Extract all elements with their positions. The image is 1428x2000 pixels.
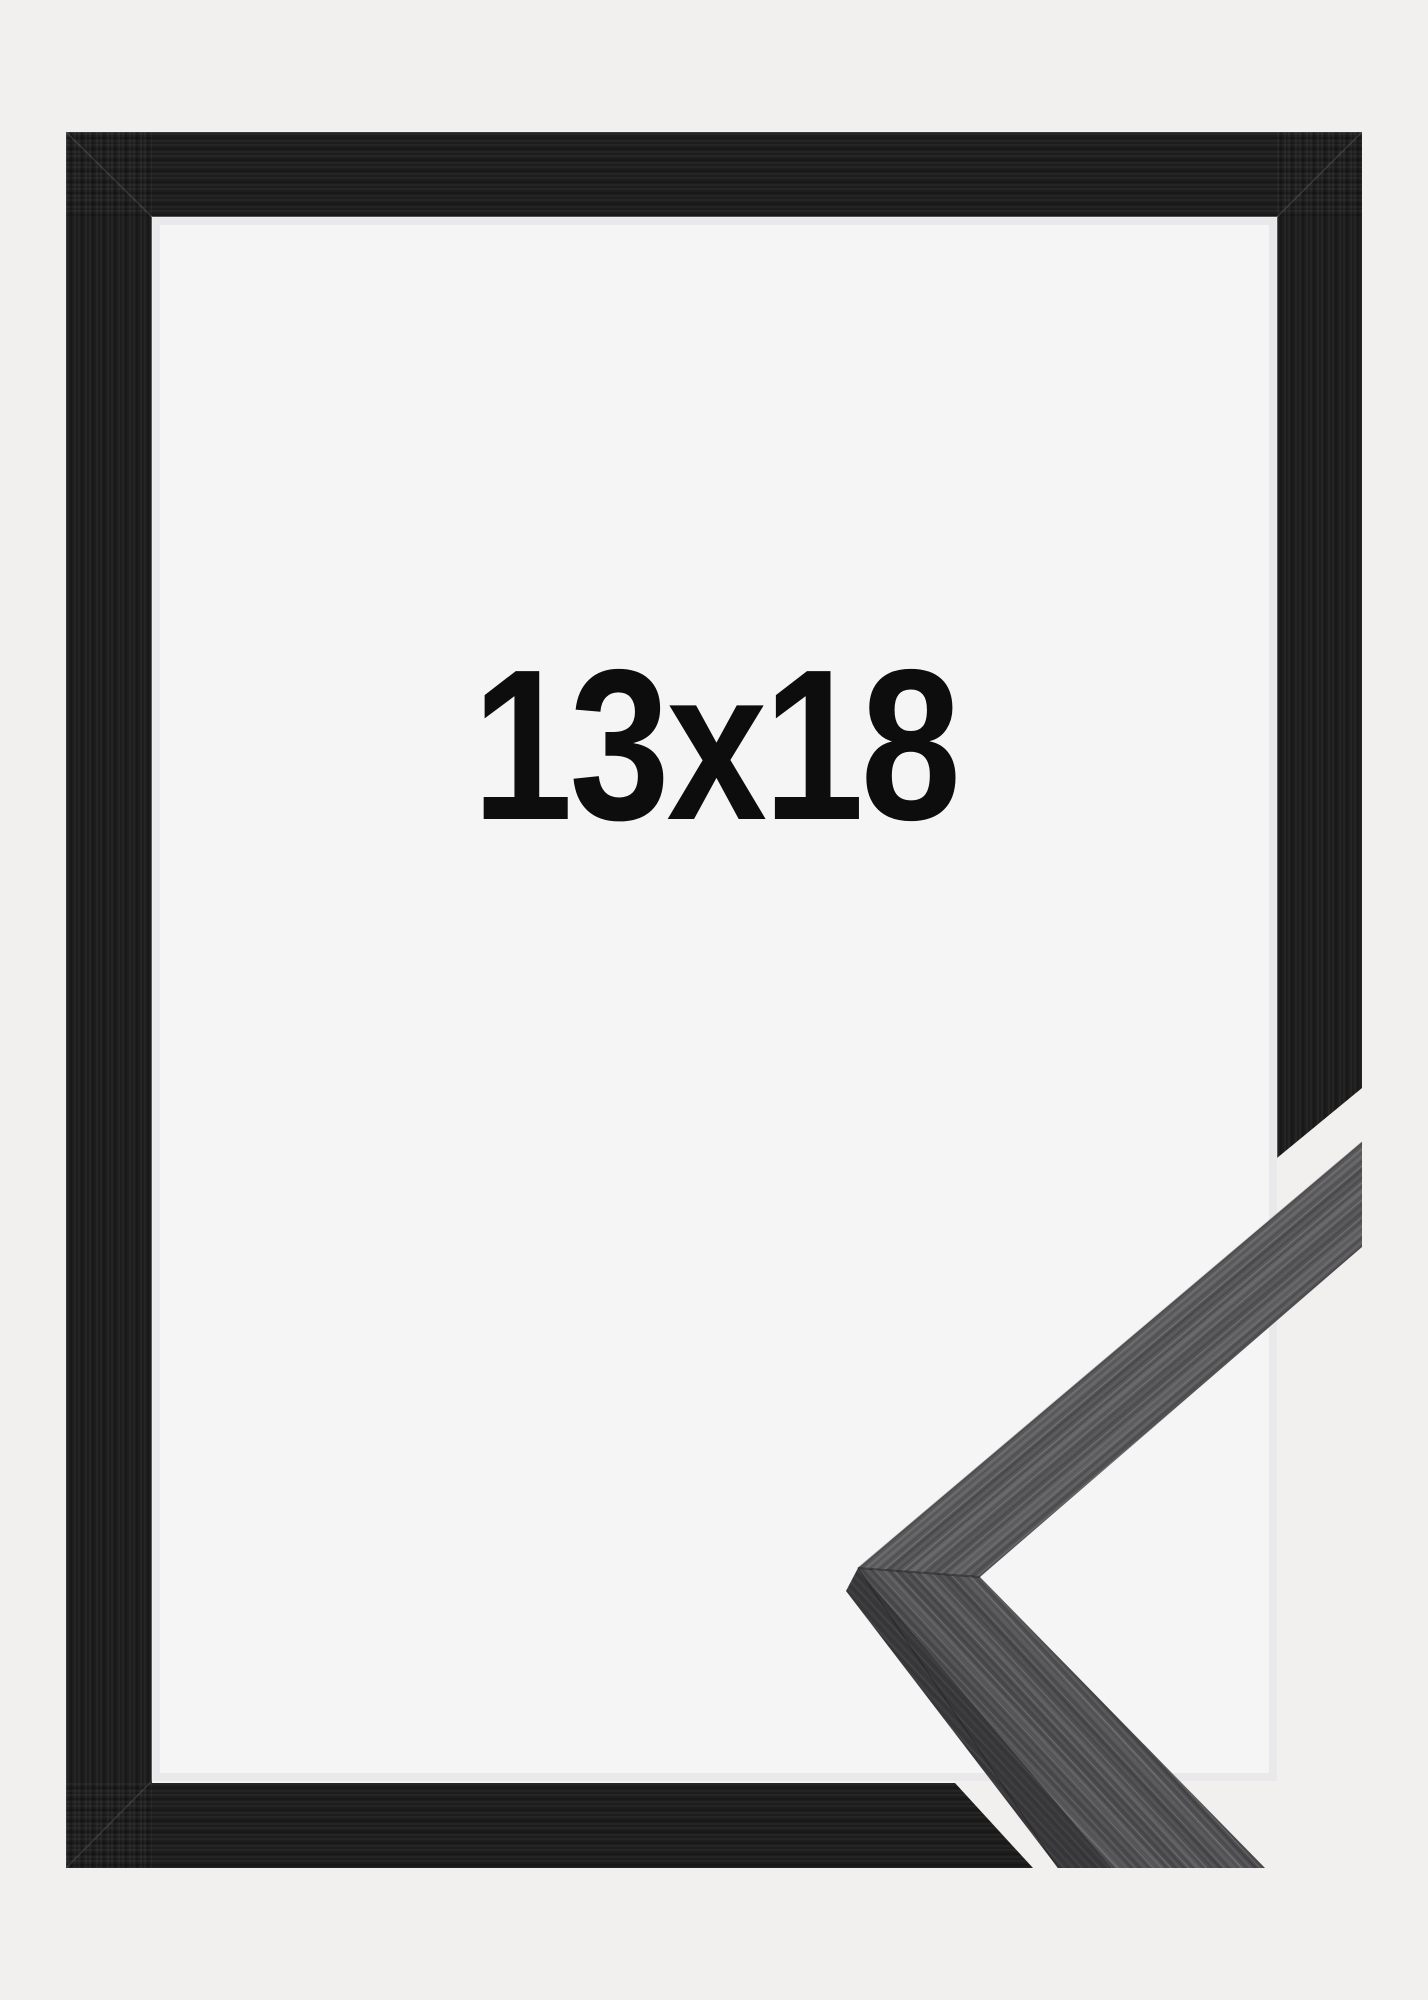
frame-top-grain — [66, 132, 1362, 217]
size-label: 13x18 — [242, 637, 1188, 852]
frame-interior — [152, 217, 1277, 1781]
frame-right-grain — [1277, 132, 1362, 1158]
frame-illustration — [0, 0, 1428, 2000]
frame-bottom-grain — [66, 1783, 1033, 1868]
frame-left-grain — [66, 132, 152, 1868]
product-photo: 13x18 — [0, 0, 1428, 2000]
